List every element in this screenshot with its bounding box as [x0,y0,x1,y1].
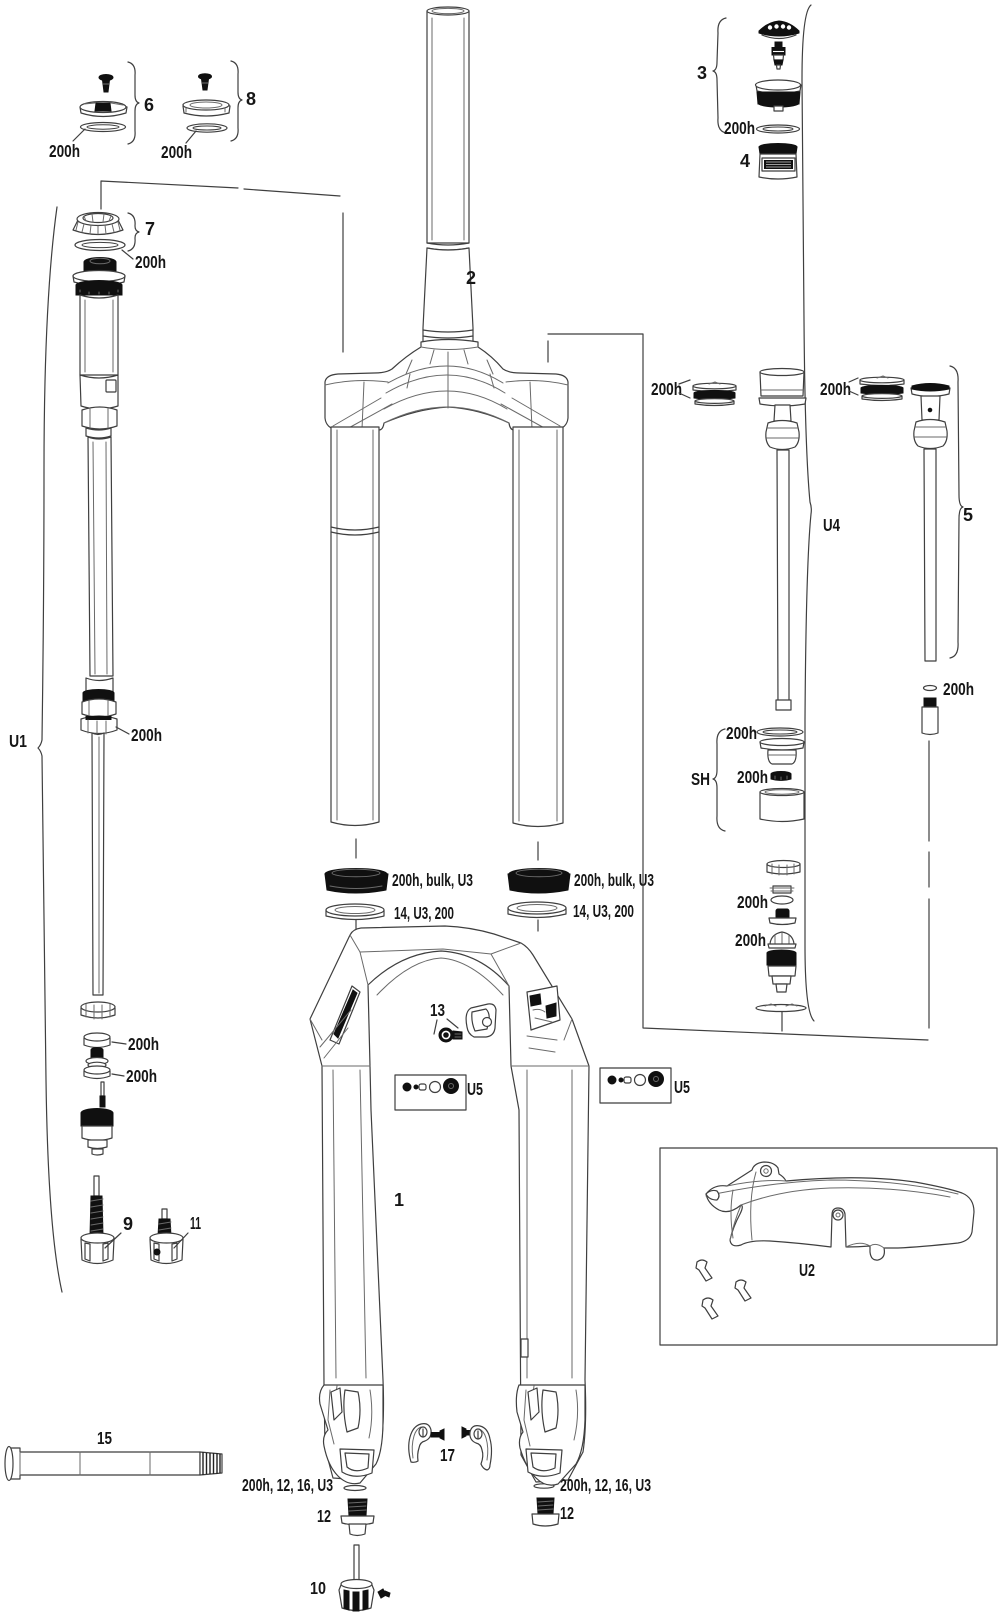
svg-text:200h, bulk, U3: 200h, bulk, U3 [574,870,654,890]
svg-text:200h, 12, 16, U3: 200h, 12, 16, U3 [560,1475,651,1495]
svg-text:200h: 200h [126,1066,157,1086]
svg-text:3: 3 [697,63,707,83]
svg-text:9: 9 [123,1214,133,1234]
svg-text:U5: U5 [674,1077,690,1097]
svg-text:1: 1 [394,1190,404,1210]
svg-text:10: 10 [310,1578,326,1598]
svg-text:8: 8 [246,89,256,109]
svg-text:200h: 200h [131,725,162,745]
svg-text:200h, 12, 16, U3: 200h, 12, 16, U3 [242,1475,333,1495]
svg-text:200h: 200h [726,723,757,743]
svg-text:U1: U1 [9,731,27,751]
svg-text:7: 7 [145,219,155,239]
svg-text:13: 13 [430,1000,445,1020]
svg-text:200h: 200h [737,892,768,912]
svg-text:200h: 200h [724,118,755,138]
svg-text:15: 15 [97,1428,112,1448]
svg-text:12: 12 [560,1503,574,1523]
svg-text:14, U3, 200: 14, U3, 200 [573,901,634,921]
svg-text:2: 2 [466,268,476,288]
svg-text:U5: U5 [467,1079,483,1099]
svg-text:200h, bulk, U3: 200h, bulk, U3 [392,870,473,890]
svg-text:200h: 200h [943,679,974,699]
svg-text:200h: 200h [135,252,166,272]
svg-text:6: 6 [144,95,154,115]
svg-text:17: 17 [440,1445,455,1465]
svg-text:SH: SH [691,769,710,789]
svg-text:12: 12 [317,1506,331,1526]
svg-text:200h: 200h [651,379,682,399]
svg-text:200h: 200h [820,379,851,399]
svg-text:5: 5 [963,505,973,525]
svg-text:U4: U4 [823,515,840,535]
svg-text:200h: 200h [161,142,192,162]
svg-text:U2: U2 [799,1260,815,1280]
svg-text:200h: 200h [735,930,766,950]
svg-text:200h: 200h [737,767,768,787]
svg-text:11: 11 [190,1213,201,1233]
svg-text:200h: 200h [128,1034,159,1054]
svg-text:200h: 200h [49,141,80,161]
svg-text:4: 4 [740,151,750,171]
svg-text:14, U3, 200: 14, U3, 200 [394,903,454,923]
